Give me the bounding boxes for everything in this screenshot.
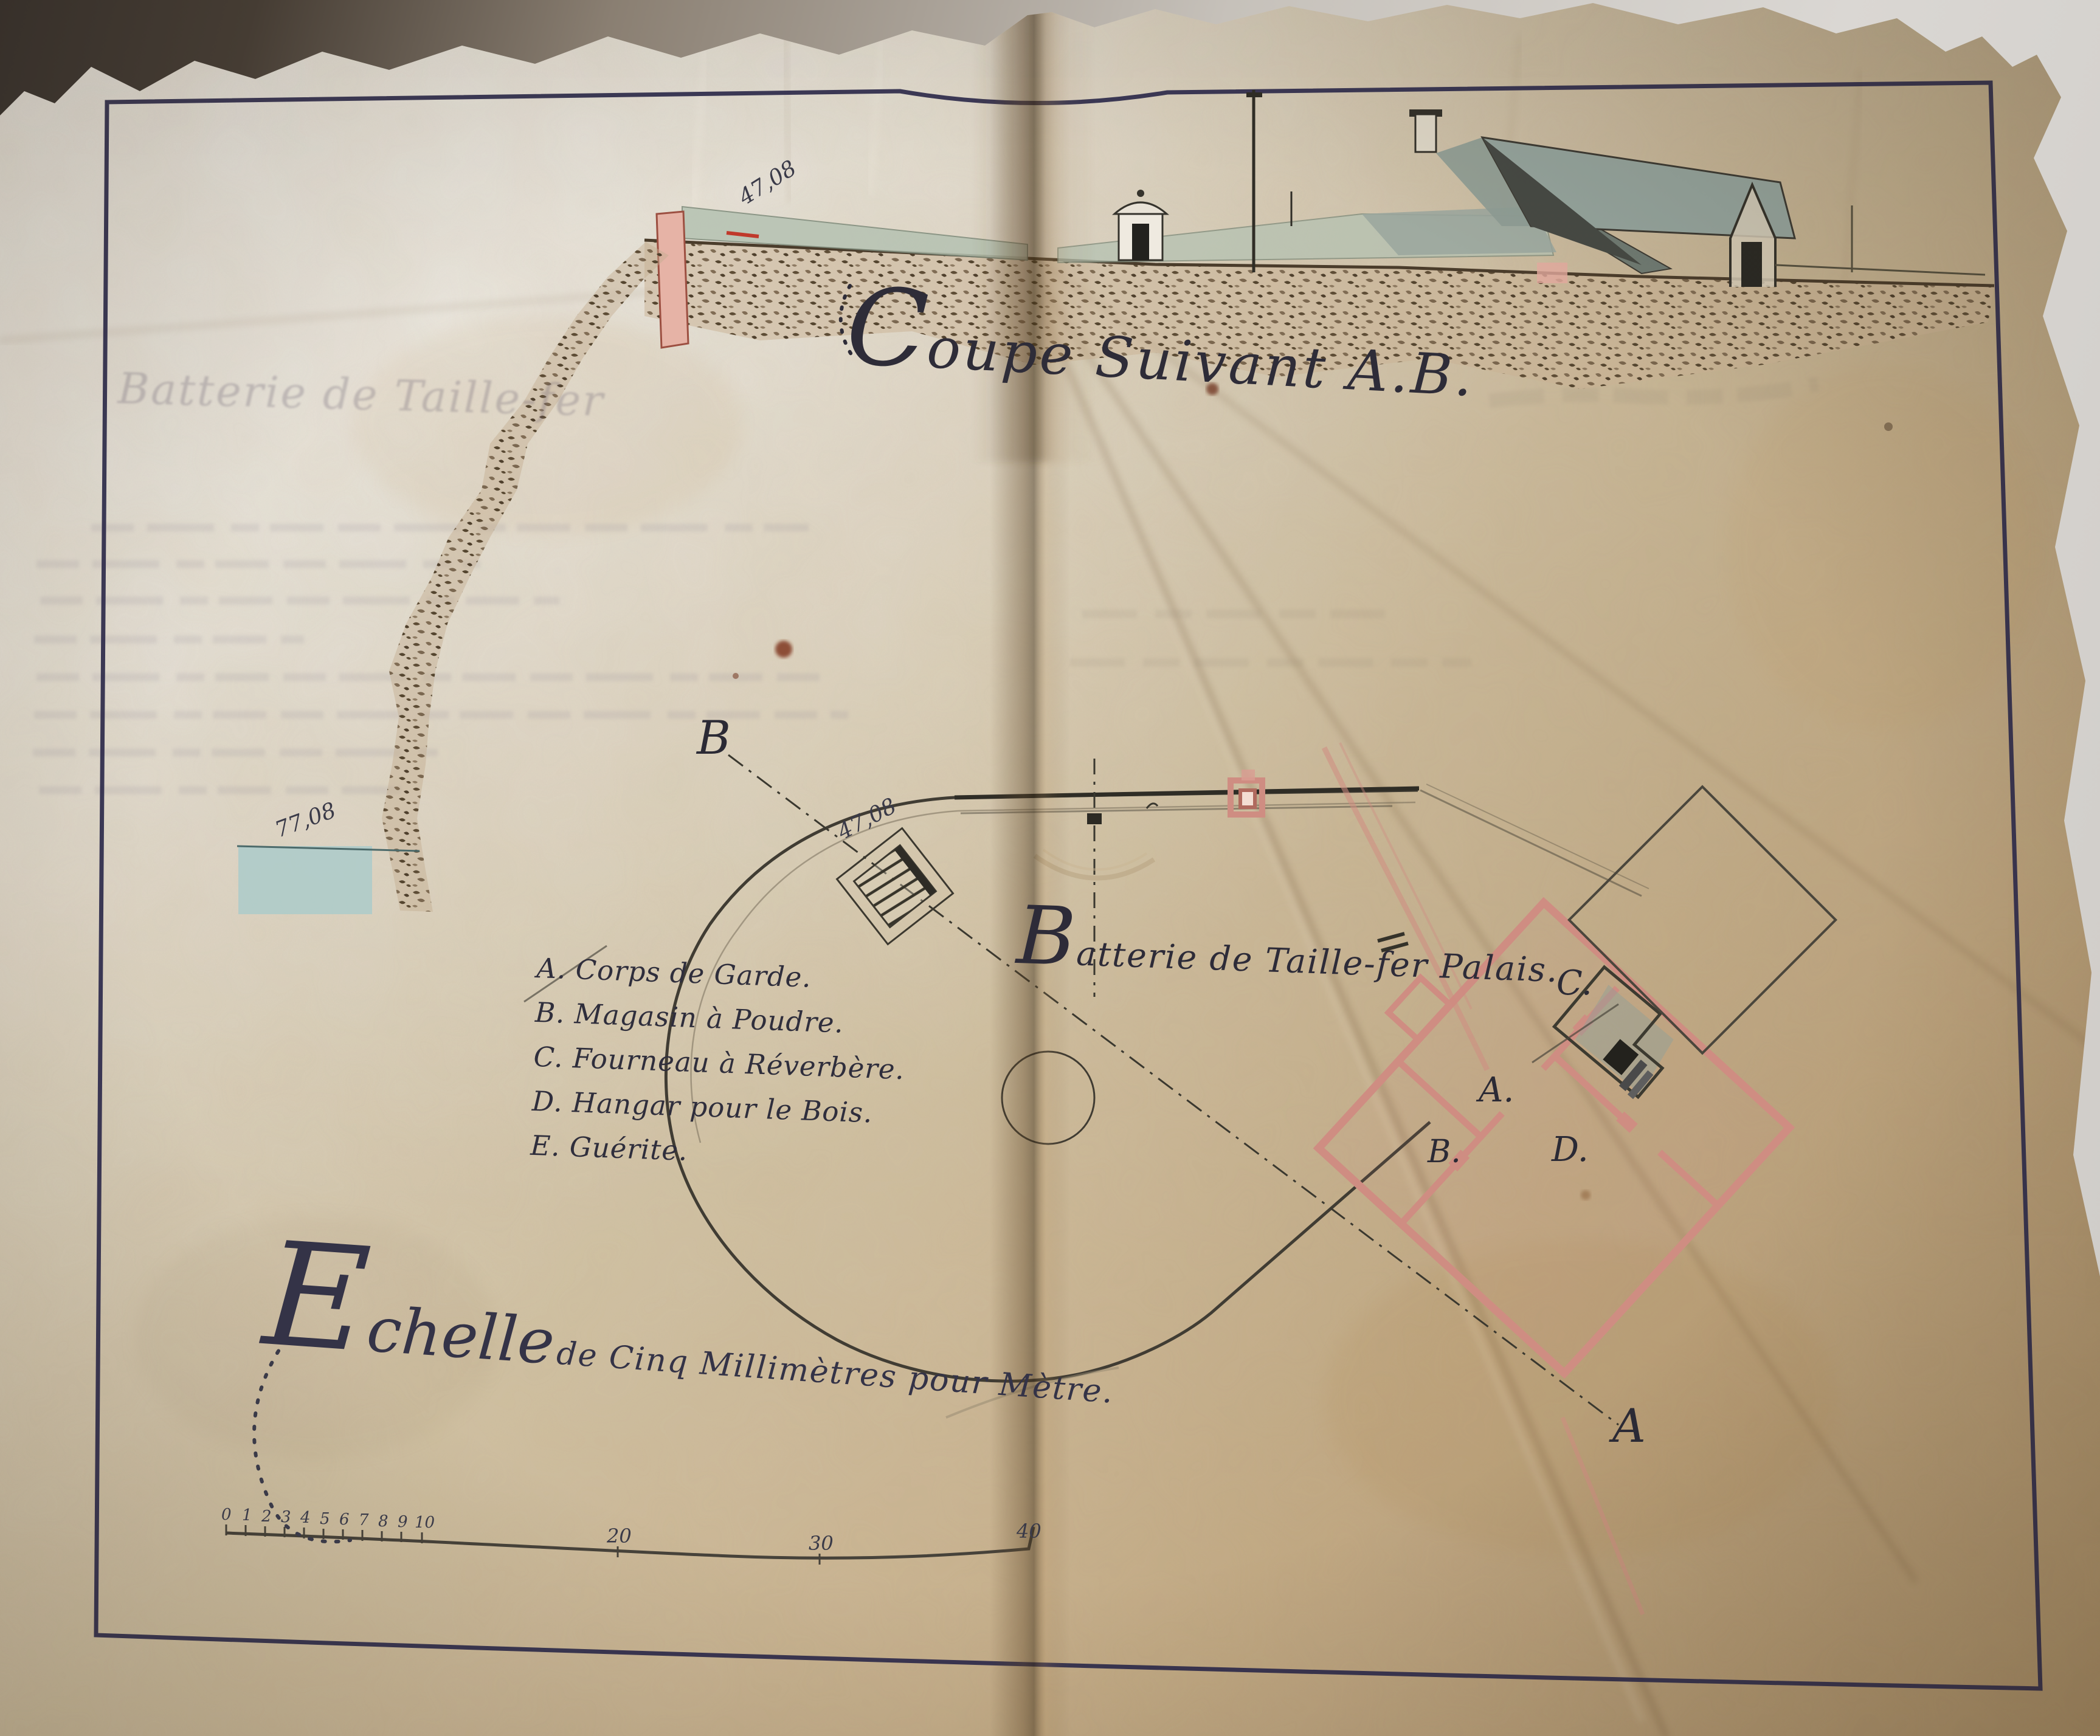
scale-unit-8: 8: [378, 1512, 389, 1531]
section-point-a-label: A: [1609, 1399, 1646, 1453]
scale-unit-7: 7: [359, 1511, 369, 1529]
scale-ten-30: 30: [809, 1532, 834, 1555]
scale-unit-5: 5: [320, 1510, 330, 1528]
scale-unit-3: 3: [281, 1508, 291, 1526]
scale-unit-10: 10: [415, 1514, 435, 1532]
plan-artwork: 47,08 47,08 77,08 B A C. A. B. D. 0 1 2 …: [0, 0, 2100, 1736]
scale-unit-2: 2: [261, 1507, 272, 1526]
scale-caption-initial: E: [259, 1210, 375, 1384]
photo-vignette: [0, 0, 2100, 1736]
scale-unit-4: 4: [300, 1509, 311, 1527]
legend: A. Corps de Garde. B. Magasin à Poudre. …: [530, 946, 908, 1180]
room-b-label: B.: [1427, 1134, 1461, 1170]
scale-unit-0: 0: [221, 1506, 232, 1524]
scale-caption-word: chelle: [365, 1293, 557, 1379]
section-point-b-label: B: [696, 711, 731, 765]
scale-unit-6: 6: [339, 1510, 350, 1529]
room-a-label: A.: [1476, 1070, 1514, 1110]
room-c-label: C.: [1556, 963, 1592, 1003]
photographed-plan-document: 47,08 47,08 77,08 B A C. A. B. D. 0 1 2 …: [0, 0, 2100, 1736]
room-d-label: D.: [1551, 1130, 1589, 1169]
scale-unit-1: 1: [242, 1506, 252, 1524]
scale-unit-9: 9: [398, 1513, 408, 1531]
battery-name-label: Batterie de Taille-fer Palais.: [1015, 889, 1561, 1001]
scale-ten-20: 20: [606, 1524, 632, 1548]
scale-ten-40: 40: [1016, 1520, 1041, 1543]
